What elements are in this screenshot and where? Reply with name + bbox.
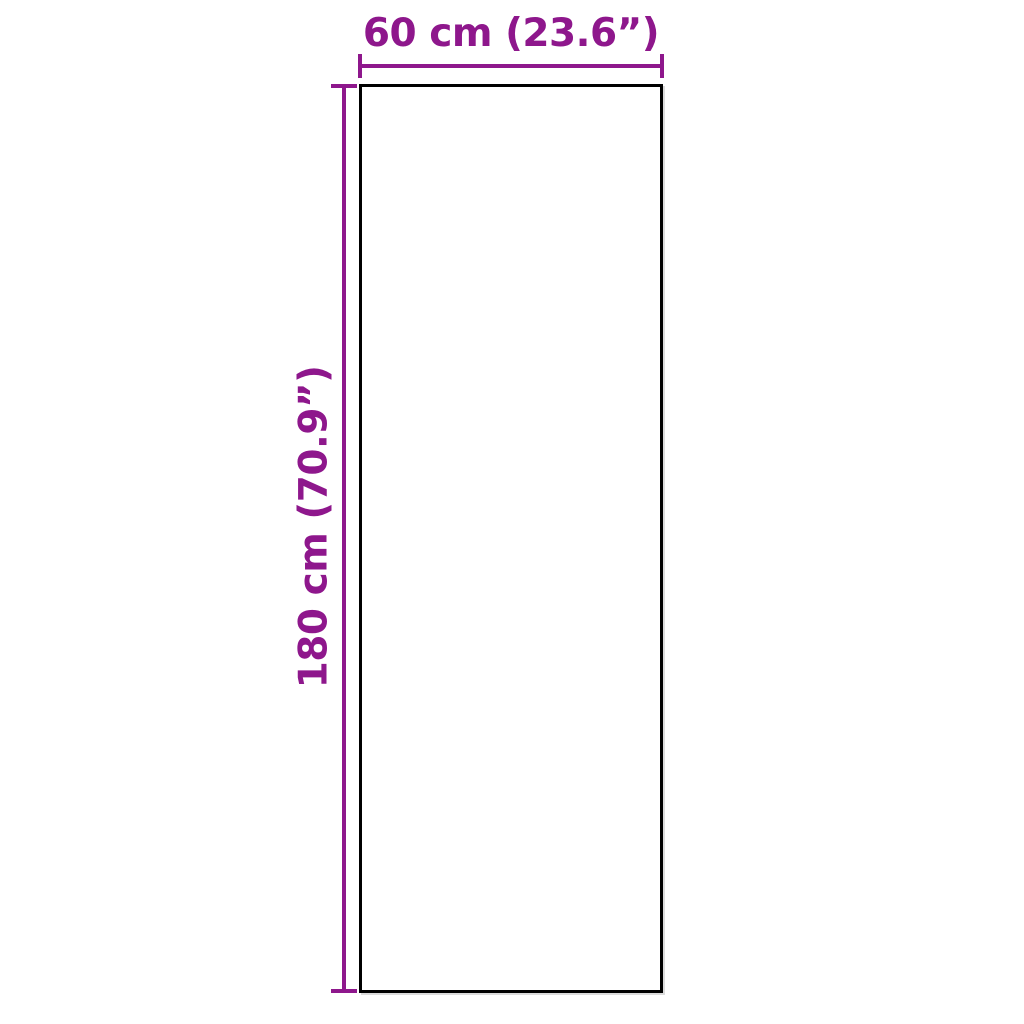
product-outline-rectangle [359, 84, 663, 993]
dimension-diagram: 60 cm (23.6”) 180 cm (70.9”) [0, 0, 1024, 1024]
width-dimension-line [359, 64, 663, 68]
height-dimension-line [342, 84, 346, 993]
height-dimension-tick-bottom [331, 989, 357, 993]
height-dimension-tick-top [331, 84, 357, 88]
width-dimension-label: 60 cm (23.6”) [359, 12, 663, 56]
width-dimension-tick-left [358, 54, 362, 78]
height-dimension-label: 180 cm (70.9”) [292, 366, 337, 689]
width-dimension-tick-right [660, 54, 664, 78]
